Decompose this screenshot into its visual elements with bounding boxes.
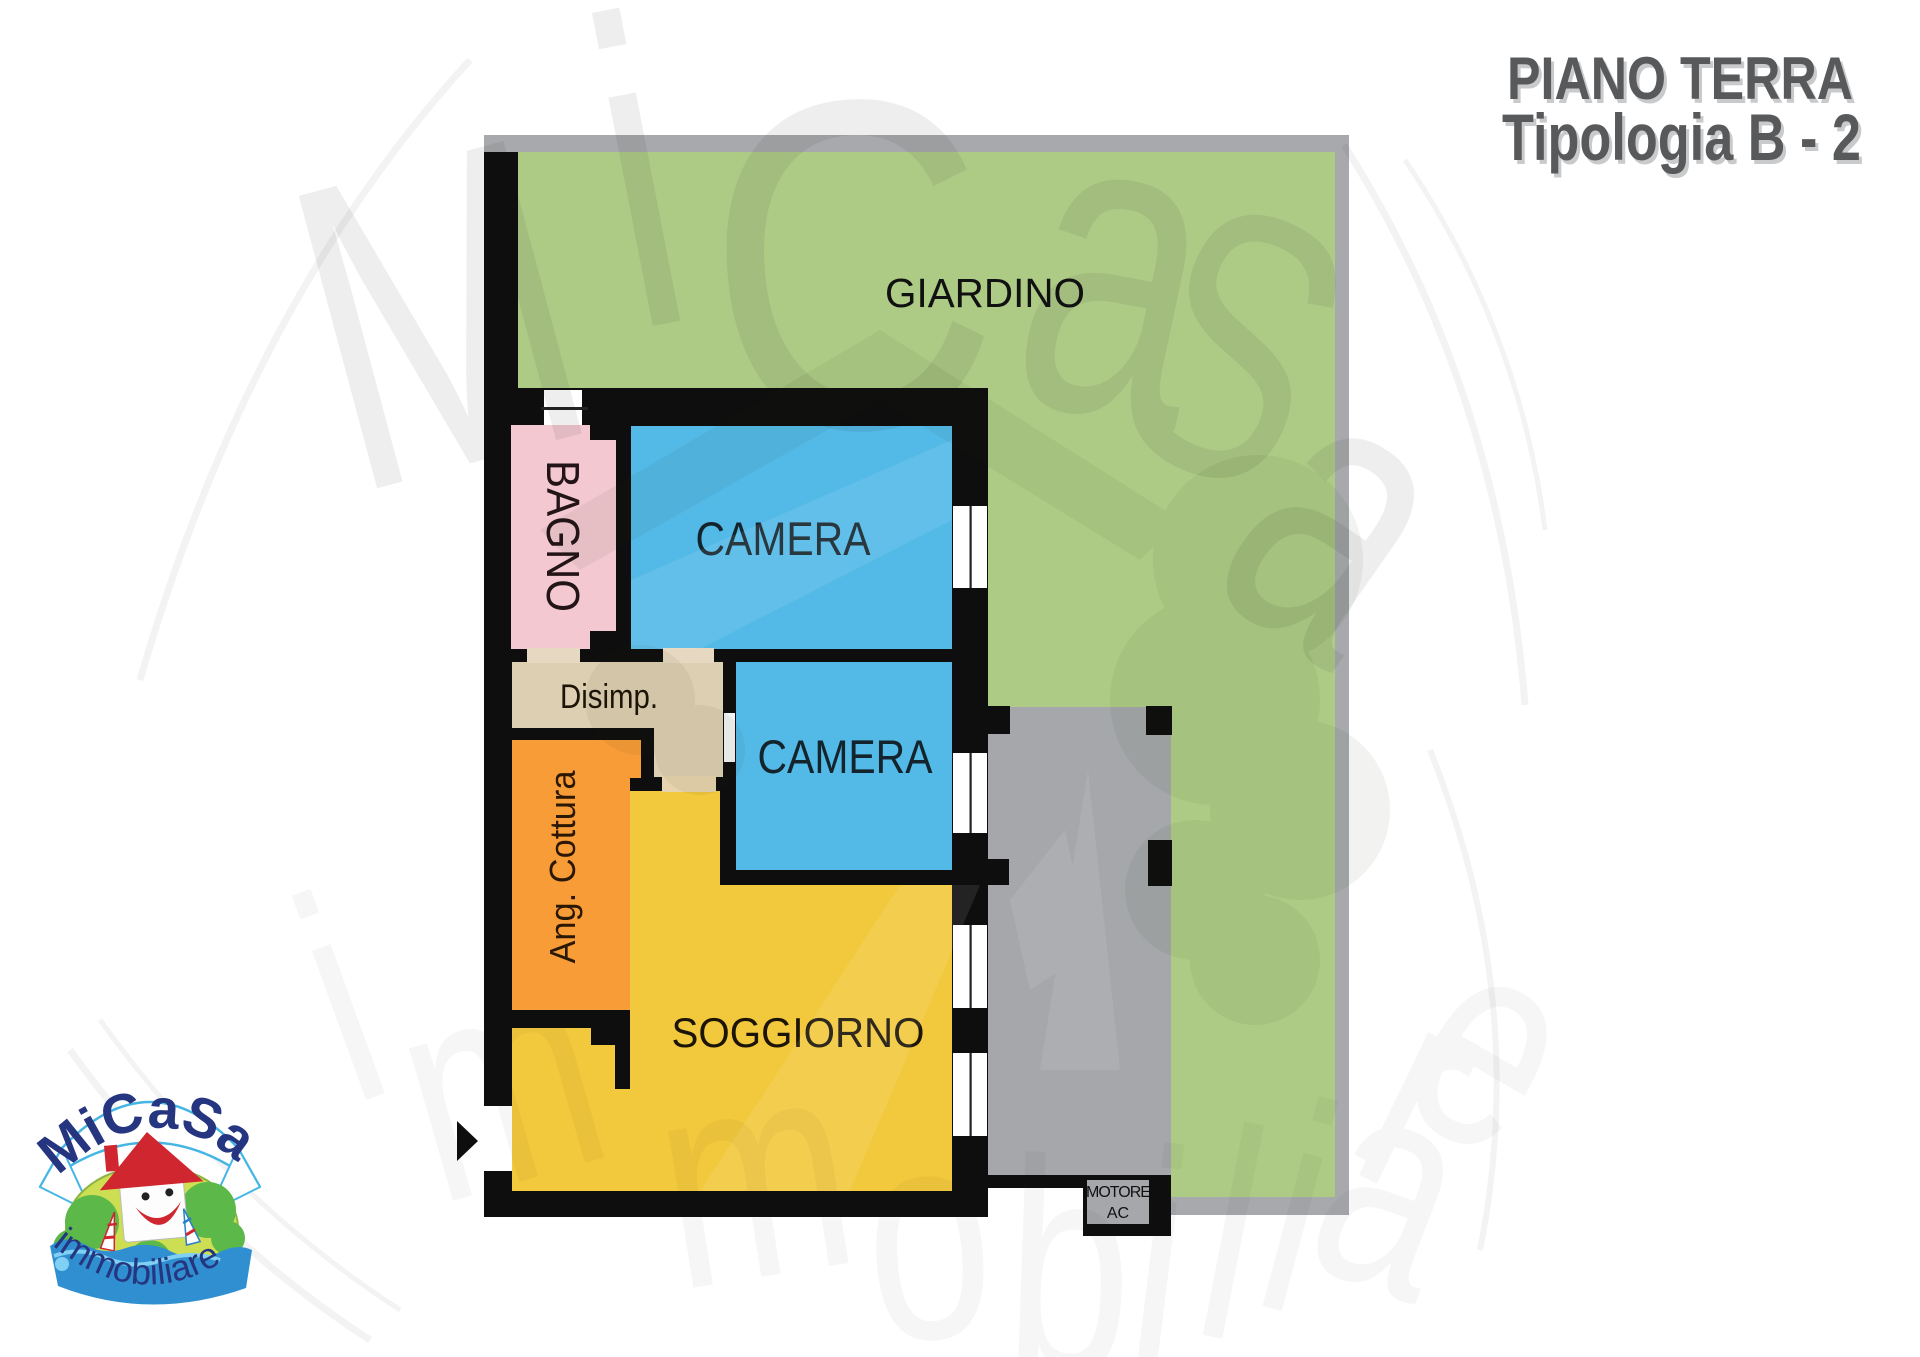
svg-text:Tipologia B - 2: Tipologia B - 2 [1502, 100, 1861, 174]
svg-text:b: b [1001, 1098, 1138, 1357]
svg-text:CAMERA: CAMERA [758, 730, 934, 783]
